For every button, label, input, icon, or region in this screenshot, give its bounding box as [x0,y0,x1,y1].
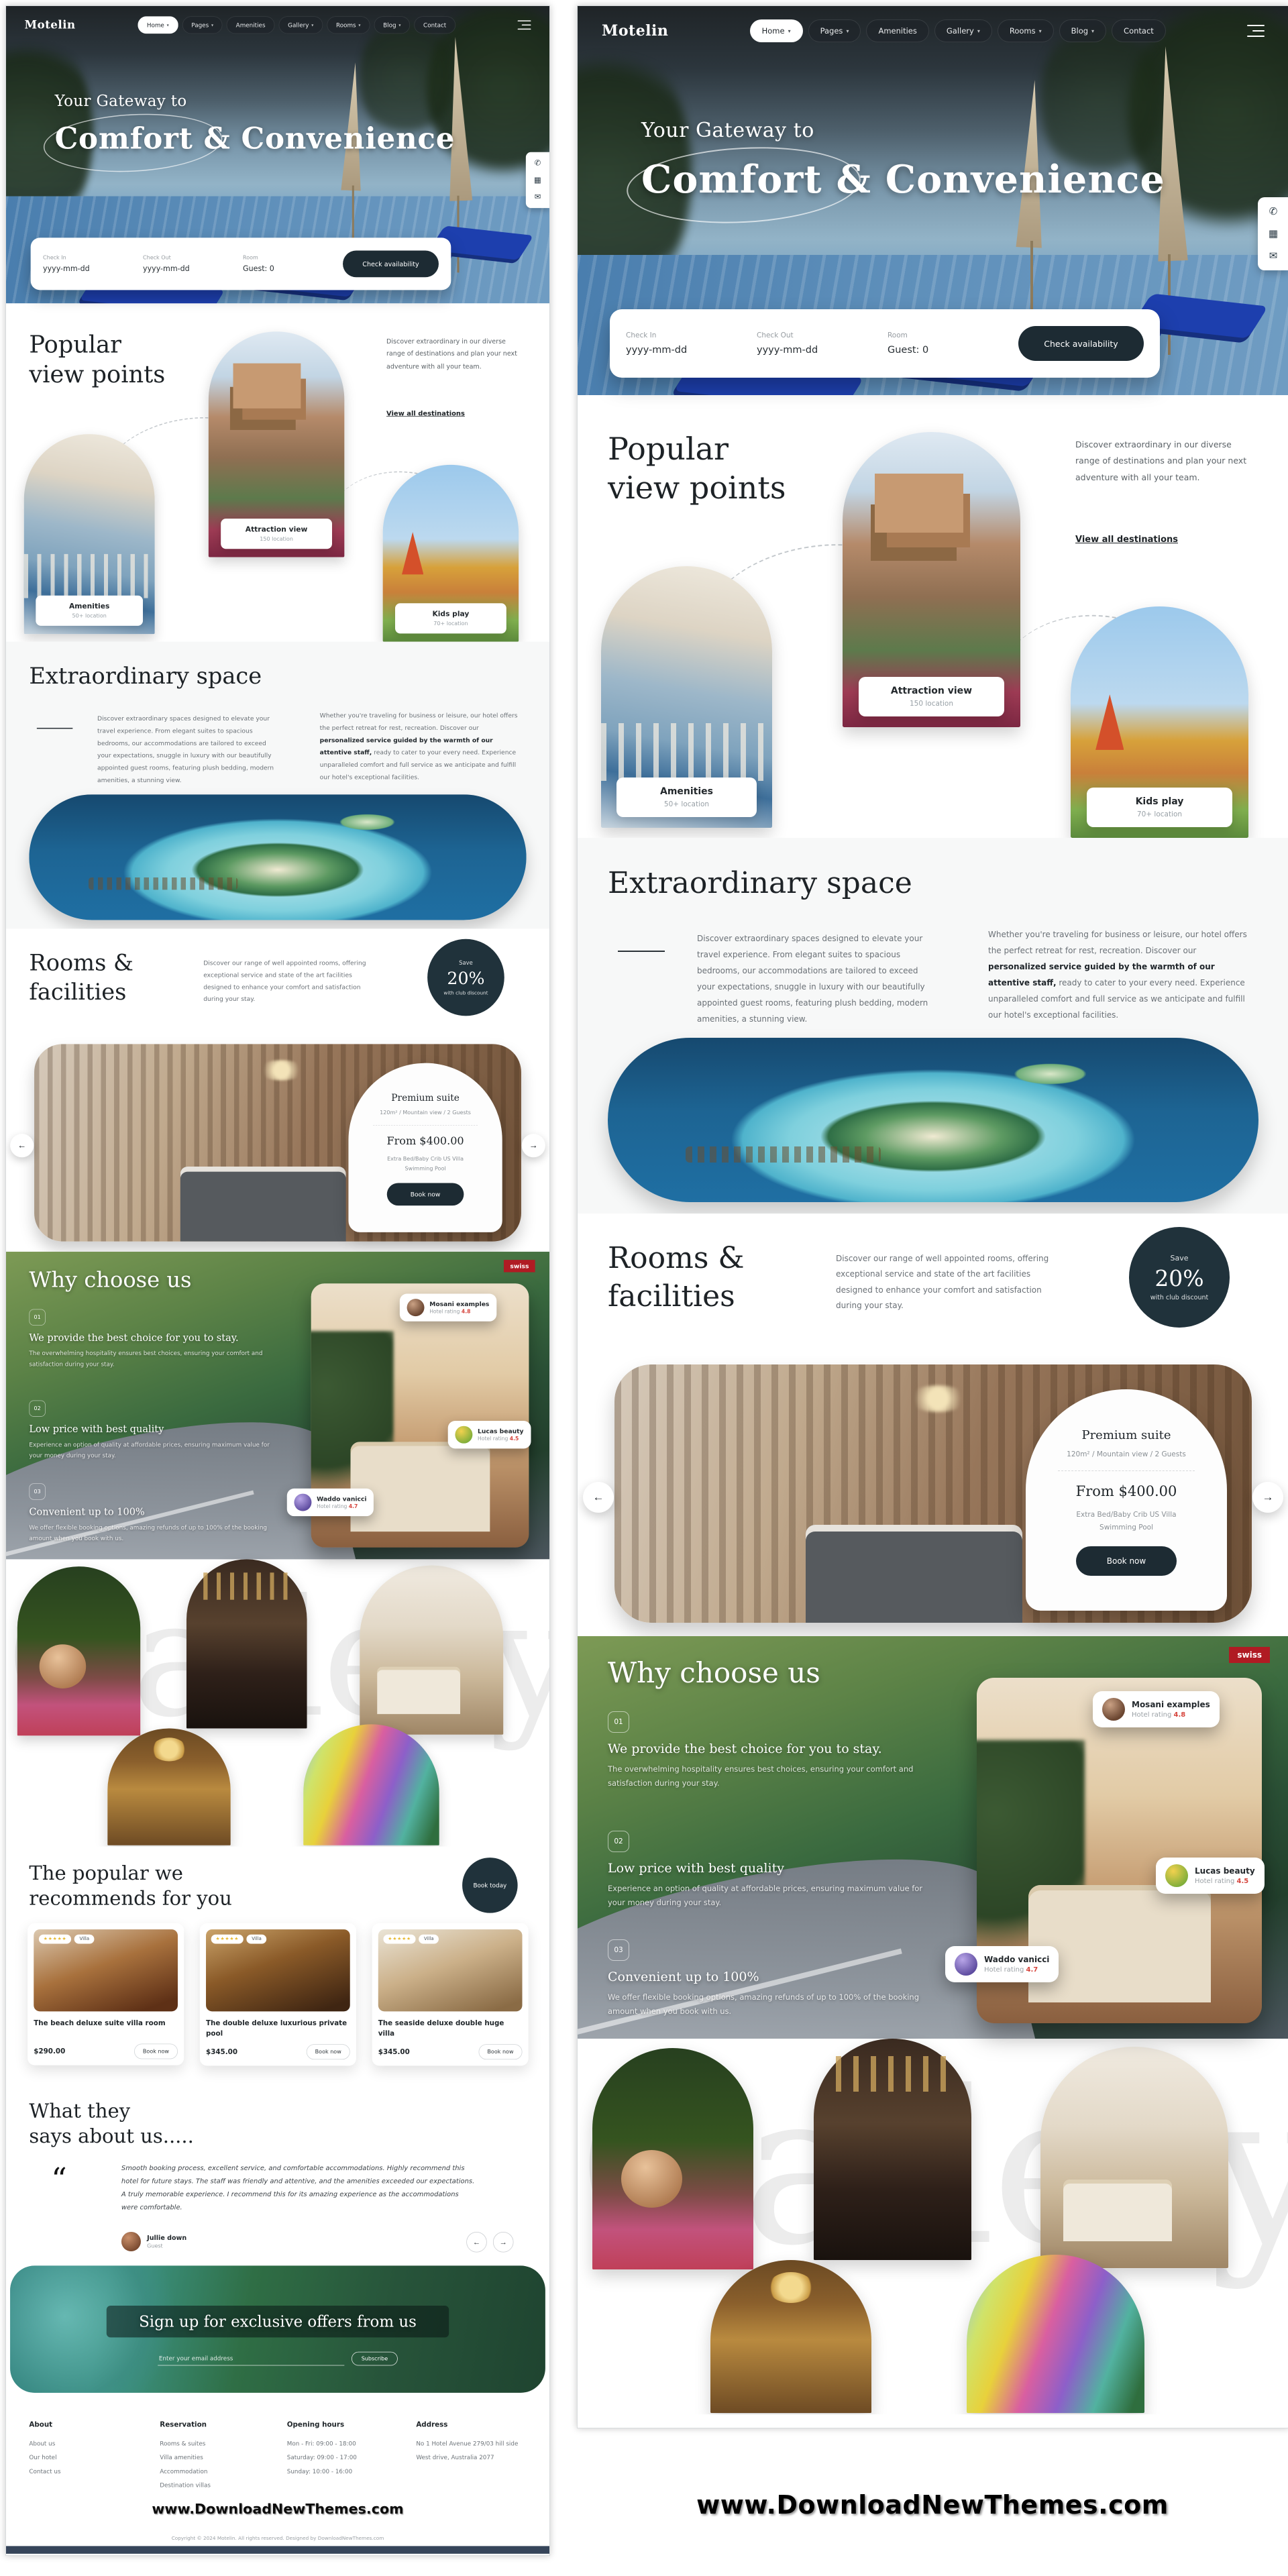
check-availability-button[interactable]: Check availability [1018,326,1144,361]
section-paragraph: Discover extraordinary spaces designed t… [697,930,938,1027]
hero-side-toolbar: ✆ ▦ ✉ [1258,197,1288,270]
template-preview-large: Motelin Home▾ Pages▾ Amenities Gallery▾ … [577,5,1288,2428]
nav-item-gallery[interactable]: Gallery▾ [934,19,992,42]
section-title: Popularview points [608,430,786,507]
room-title: The beach deluxe suite villa room [34,2018,178,2039]
room-info-card: Premium suite 120m² / Mountain view / 2 … [1026,1389,1227,1611]
chevron-down-icon: ▾ [1039,28,1042,34]
star-rating: ★★★★★ [211,1935,244,1944]
footer-link[interactable]: Destination villas [160,2479,278,2493]
book-today-button[interactable]: Book today [462,1858,518,1913]
room-guest-field[interactable]: Room Guest: 0 [243,255,343,274]
chevron-down-icon: ▾ [977,28,980,34]
card-label: Kids play 70+ location [395,603,506,633]
mail-icon[interactable]: ✉ [1269,251,1278,261]
discount-badge: Save 20% with club discount [427,939,504,1016]
chevron-down-icon: ▾ [211,23,213,28]
room-price: $345.00 [378,2047,410,2055]
hero-title: Comfort & Convenience [641,157,1165,202]
recommends-section: The popular werecommends for you Book to… [578,2414,1288,2428]
viewpoints-section: Popularview points Discover extraordinar… [578,395,1288,838]
island-aerial-photo [608,1038,1258,1202]
signup-form: Subscribe [10,2352,545,2366]
checkin-field[interactable]: Check In yyyy-mm-dd [626,331,757,356]
nav-item-amenities[interactable]: Amenities [866,19,928,42]
section-description: Discover extraordinary in our diverse ra… [1075,437,1258,486]
brand-logo[interactable]: Motelin [602,22,668,40]
chevron-down-icon: ▾ [846,28,849,34]
grid-icon[interactable]: ▦ [1269,229,1278,239]
divider [1058,1470,1195,1471]
phone-icon[interactable]: ✆ [535,159,541,166]
book-now-button[interactable]: Book now [1076,1546,1177,1576]
review-chip: Mosani examples Hotel rating 4.8 [1093,1691,1220,1727]
address-line: No 1 Hotel Avenue 279/03 hill side [416,2437,531,2451]
avatar [294,1494,311,1511]
room-photo: ★★★★★Villa [206,1929,350,2011]
chevron-down-icon: ▾ [311,23,313,28]
hero-section: Motelin Home▾ Pages▾ Amenities Gallery▾ … [578,6,1288,395]
testimonial-section: What theysays about us..... “ Smooth boo… [6,2087,549,2261]
testimonial-quote: Smooth booking process, excellent servic… [121,2162,475,2214]
ellipse-decoration [42,109,224,176]
room-info-card: Premium suite 120m² / Mountain view / 2 … [348,1063,502,1232]
footer-link[interactable]: About us [29,2437,131,2451]
scaled-site: Motelin Home▾ Pages▾ Amenities Gallery▾ … [6,6,549,2554]
copyright: Copyright © 2024 Motelin. All rights res… [6,2536,549,2541]
email-input[interactable] [158,2352,344,2366]
hero-section: Motelin Home▾ Pages▾ Amenities Gallery▾ … [6,6,549,303]
section-title: Popularview points [29,330,165,389]
item-number: 02 [608,1831,629,1852]
testimonial-author: Jullie downGuest [121,2232,186,2251]
full-site: Motelin Home▾ Pages▾ Amenities Gallery▾ … [578,6,1288,2428]
why-item: 02 Low price with best quality Experienc… [608,1831,930,1911]
why-choose-us-section: swiss Why choose us 01 We provide the be… [578,1636,1288,2039]
nav-item-home[interactable]: Home▾ [750,19,803,42]
room-price: $345.00 [206,2047,237,2055]
hero-kicker: Your Gateway to [55,92,455,110]
room-card: ★★★★★Villa The double deluxe luxurious p… [200,1923,356,2065]
review-chip: Lucas beauty Hotel rating 4.5 [1156,1858,1265,1894]
swiss-tag: swiss [504,1260,535,1272]
avatar [1102,1698,1125,1721]
nav-item-gallery[interactable]: Gallery▾ [278,16,323,34]
gallery-photo-classic-bedroom[interactable] [1040,2047,1228,2268]
viewpoint-card-kids-play[interactable]: Kids play 70+ location [1071,606,1248,838]
brand-logo[interactable]: Motelin [25,18,76,32]
item-number: 01 [608,1711,629,1733]
ellipse-decoration [625,142,862,229]
room-title: The double deluxe luxurious private pool [206,2018,350,2039]
card-label: Attraction view 150 location [221,519,332,549]
bed-decoration [806,1525,1022,1623]
testimonial-arrows: ← → [466,2232,513,2253]
top-navigation: Motelin Home▾ Pages▾ Amenities Gallery▾ … [6,6,549,44]
gallery-photo-bartender[interactable] [186,1559,307,1728]
grid-icon[interactable]: ▦ [534,176,541,184]
room-extras: Extra Bed/Baby Crib US VillaSwimming Poo… [1026,1509,1227,1534]
item-title: Low price with best quality [29,1424,275,1435]
avatar [455,1426,472,1444]
room-card: ★★★★★Villa The seaside deluxe double hug… [372,1923,529,2065]
section-paragraph: Discover extraordinary spaces designed t… [97,712,282,786]
rooms-section: Rooms &facilities Discover our range of … [578,1214,1288,1636]
room-price: From $400.00 [348,1135,502,1147]
signup-title: Sign up for exclusive offers from us [10,2313,545,2331]
subscribe-button[interactable]: Subscribe [352,2352,397,2366]
viewpoint-card-amenities[interactable]: Amenities 50+ location [24,434,155,634]
hero-heading-block: Your Gateway to Comfort & Convenience [55,92,455,156]
star-rating: ★★★★★ [383,1935,415,1944]
top-navigation: Motelin Home▾ Pages▾ Amenities Gallery▾ … [578,6,1288,56]
item-title: Convenient up to 100% [608,1970,930,1984]
chevron-down-icon: ▾ [1091,28,1094,34]
nav-item-rooms[interactable]: Rooms▾ [327,16,370,34]
discount-badge: Save 20% with club discount [1129,1227,1230,1328]
book-now-button[interactable]: Book now [134,2043,178,2059]
template-preview-small: Motelin Home▾ Pages▾ Amenities Gallery▾ … [5,5,550,2556]
page-end-bar [6,2546,549,2553]
item-text: We offer flexible booking options, amazi… [608,1990,930,2019]
carousel-next-button[interactable]: → [522,1134,545,1157]
review-chip: Mosani examples Hotel rating 4.8 [400,1294,496,1322]
gallery-photo-chandelier-room[interactable] [710,2260,871,2413]
room-photo: ★★★★★Villa [34,1929,178,2011]
nav-item-blog[interactable]: Blog▾ [1059,19,1106,42]
section-description: Discover extraordinary in our diverse ra… [386,335,526,373]
hours-line: Saturday: 09:00 - 17:00 [287,2451,408,2465]
item-text: The overwhelming hospitality ensures bes… [29,1348,275,1371]
section-title: Rooms &facilities [29,949,133,1007]
nav-menu: Home▾ Pages▾ Amenities Gallery▾ Rooms▾ B… [138,16,455,34]
card-label: Kids play 70+ location [1087,788,1232,827]
downloadnewthemes-watermark: www.DownloadNewThemes.com [577,2490,1288,2520]
recommends-section: The popular werecommends for you Book to… [6,1846,549,2087]
gallery-photo-spa[interactable] [592,2048,753,2269]
address-line: West drive, Australia 2077 [416,2451,531,2465]
section-title: What theysays about us..... [29,2098,193,2149]
footer-column-address: Address No 1 Hotel Avenue 279/03 hill si… [416,2420,531,2465]
carousel-next-button[interactable]: → [1252,1482,1283,1513]
item-title: We provide the best choice for you to st… [29,1332,275,1344]
avatar [121,2232,141,2251]
item-text: Experience an option of quality at affor… [29,1440,275,1462]
nav-item-pages[interactable]: Pages▾ [182,16,223,34]
hero-title: Comfort & Convenience [55,121,455,156]
item-text: Experience an option of quality at affor… [608,1882,930,1911]
card-label: Amenities 50+ location [36,596,143,626]
motelin-homepage: Motelin Home▾ Pages▾ Amenities Gallery▾ … [6,6,549,2554]
checkin-field[interactable]: Check In yyyy-mm-dd [43,255,143,274]
room-title: The seaside deluxe double huge villa [378,2018,523,2039]
review-chip: Waddo vanicci Hotel rating 4.7 [945,1946,1059,1982]
hero-heading-block: Your Gateway to Comfort & Convenience [641,119,1165,202]
signup-section: Sign up for exclusive offers from us Sub… [6,2261,549,2400]
footer-link[interactable]: Rooms & suites [160,2437,278,2451]
hamburger-menu-icon[interactable] [1247,25,1265,37]
rooms-section: Rooms &facilities Discover our range of … [6,928,549,1251]
why-item: 03 Convenient up to 100% We offer flexib… [29,1483,275,1544]
room-photo: ★★★★★Villa [378,1929,523,2011]
mail-icon[interactable]: ✉ [535,193,541,201]
book-now-button[interactable]: Book now [478,2044,522,2059]
room-card: ★★★★★Villa The beach deluxe suite villa … [28,1923,184,2065]
section-paragraph: Whether you're traveling for business or… [320,709,521,783]
hours-line: Sunday: 10:00 - 16:00 [287,2465,408,2479]
star-rating: ★★★★★ [39,1935,71,1944]
nav-item-home[interactable]: Home▾ [138,16,178,34]
footer-link[interactable]: Accommodation [160,2465,278,2479]
footer-column-about: About About us Our hotel Contact us [29,2420,131,2478]
nav-item-contact[interactable]: Contact [1112,19,1166,42]
category-pill: Villa [247,1935,267,1944]
room-price: From $400.00 [1026,1483,1227,1499]
check-availability-button[interactable]: Check availability [343,250,439,277]
downloadnewthemes-watermark: www.DownloadNewThemes.com [6,2502,549,2518]
signup-banner: Sign up for exclusive offers from us Sub… [10,2265,545,2393]
chevron-down-icon: ▾ [788,28,791,34]
item-title: Low price with best quality [608,1861,930,1876]
nav-item-contact[interactable]: Contact [414,16,455,34]
room-name: Premium suite [1026,1428,1227,1442]
quote-icon: “ [51,2164,66,2195]
view-all-destinations-link[interactable]: View all destinations [1075,535,1178,545]
room-extras: Extra Bed/Baby Crib US VillaSwimming Poo… [348,1155,502,1174]
item-text: We offer flexible booking options, amazi… [29,1522,275,1544]
view-all-destinations-link[interactable]: View all destinations [386,410,465,417]
viewpoints-section: Popularview points Discover extraordinar… [6,303,549,641]
viewpoint-card-attraction[interactable]: Attraction view 150 location [209,331,344,557]
gallery-photo-chandelier-room[interactable] [107,1729,230,1845]
nav-item-pages[interactable]: Pages▾ [808,19,861,42]
footer-link[interactable]: Our hotel [29,2451,131,2465]
lamp-decoration [258,1060,305,1081]
gallery-photo-classic-bedroom[interactable] [360,1566,503,1735]
book-now-button[interactable]: Book now [387,1183,464,1205]
item-text: The overwhelming hospitality ensures bes… [608,1762,930,1791]
footer-column-reservation: Reservation Rooms & suites Villa ameniti… [160,2420,278,2492]
island-aerial-photo [29,794,526,920]
rule-decoration [37,728,72,729]
template-preview-canvas: Motelin Home▾ Pages▾ Amenities Gallery▾ … [0,0,1288,2576]
why-item: 01 We provide the best choice for you to… [608,1711,930,1791]
footer-section: About About us Our hotel Contact us Rese… [6,2400,549,2554]
gallery-section: Gallery [6,1559,549,1846]
bed-decoration [180,1167,346,1242]
section-title: Extraordinary space [29,663,262,690]
divider [373,1125,478,1126]
card-label: Attraction view 150 location [859,677,1004,716]
carousel-prev-button[interactable]: ← [10,1134,34,1157]
why-item: 02 Low price with best quality Experienc… [29,1400,275,1461]
room-name: Premium suite [348,1093,502,1104]
chevron-down-icon: ▾ [167,23,169,28]
footer-column-hours: Opening hours Mon - Fri: 09:00 - 18:00 S… [287,2420,408,2478]
item-number: 02 [29,1400,45,1416]
review-chip: Lucas beauty Hotel rating 4.5 [448,1421,531,1448]
rule-decoration [618,951,665,952]
section-title: Why choose us [29,1267,191,1292]
avatar [407,1299,425,1316]
hero-side-toolbar: ✆ ▦ ✉ [526,152,549,208]
category-pill: Villa [74,1935,95,1944]
swiss-tag: swiss [1229,1647,1270,1663]
why-item: 03 Convenient up to 100% We offer flexib… [608,1939,930,2019]
nav-item-rooms[interactable]: Rooms▾ [998,19,1054,42]
footer-link[interactable]: Villa amenities [160,2451,278,2465]
section-paragraph: Whether you're traveling for business or… [988,926,1251,1023]
section-title: Extraordinary space [608,866,912,900]
item-number: 03 [608,1939,629,1961]
why-choose-us-section: swiss Why choose us 01 We provide the be… [6,1252,549,1559]
lamp-decoration [908,1385,968,1412]
checkout-field[interactable]: Check Out yyyy-mm-dd [757,331,888,356]
hamburger-menu-icon[interactable] [518,20,531,30]
nav-item-amenities[interactable]: Amenities [227,16,274,34]
avatar [1165,1864,1188,1887]
item-number: 01 [29,1309,45,1325]
checkout-field[interactable]: Check Out yyyy-mm-dd [143,255,243,274]
item-title: We provide the best choice for you to st… [608,1741,930,1756]
item-number: 03 [29,1483,45,1499]
room-price: $290.00 [34,2047,65,2055]
extraordinary-section: Extraordinary space Discover extraordina… [578,838,1288,1214]
hours-line: Mon - Fri: 09:00 - 18:00 [287,2437,408,2451]
carousel-prev-button[interactable]: ← [583,1482,614,1513]
hero-kicker: Your Gateway to [641,119,1165,142]
why-item: 01 We provide the best choice for you to… [29,1309,275,1370]
gallery-photo-spa[interactable] [17,1566,140,1735]
gallery-section: Gallery [578,2039,1288,2414]
chevron-down-icon: ▾ [398,23,400,28]
avatar [955,1953,977,1976]
room-meta: 120m² / Mountain view / 2 Guests [1026,1450,1227,1458]
section-description: Discover our range of well appointed roo… [203,957,372,1005]
viewpoint-card-attraction[interactable]: Attraction view 150 location [843,432,1020,727]
viewpoint-card-amenities[interactable]: Amenities 50+ location [601,566,772,828]
booking-bar: Check In yyyy-mm-dd Check Out yyyy-mm-dd… [31,237,451,290]
room-guest-field[interactable]: Room Guest: 0 [888,331,1018,356]
viewpoint-card-kids-play[interactable]: Kids play 70+ location [383,465,519,642]
extraordinary-section: Extraordinary space Discover extraordina… [6,642,549,929]
motelin-homepage: Motelin Home▾ Pages▾ Amenities Gallery▾ … [578,6,1288,2428]
next-testimonial-button[interactable]: → [493,2232,514,2253]
card-label: Amenities 50+ location [616,777,757,817]
nav-menu: Home▾ Pages▾ Amenities Gallery▾ Rooms▾ B… [750,19,1166,42]
section-title: Why choose us [608,1656,820,1689]
nav-item-blog[interactable]: Blog▾ [374,16,410,34]
section-description: Discover our range of well appointed roo… [836,1251,1057,1314]
chevron-down-icon: ▾ [358,23,360,28]
footer-link[interactable]: Contact us [29,2465,131,2479]
section-title: Rooms &facilities [608,1239,745,1316]
booking-bar: Check In yyyy-mm-dd Check Out yyyy-mm-dd… [610,309,1160,378]
section-title: The popular werecommends for you [29,1861,231,1911]
phone-icon[interactable]: ✆ [1269,207,1278,217]
prev-testimonial-button[interactable]: ← [466,2232,487,2253]
category-pill: Villa [419,1935,439,1944]
review-chip: Waddo vanicci Hotel rating 4.7 [287,1489,374,1516]
gallery-photo-bartender[interactable] [814,2039,971,2260]
book-now-button[interactable]: Book now [307,2044,350,2059]
item-title: Convenient up to 100% [29,1507,275,1518]
room-meta: 120m² / Mountain view / 2 Guests [348,1110,502,1116]
